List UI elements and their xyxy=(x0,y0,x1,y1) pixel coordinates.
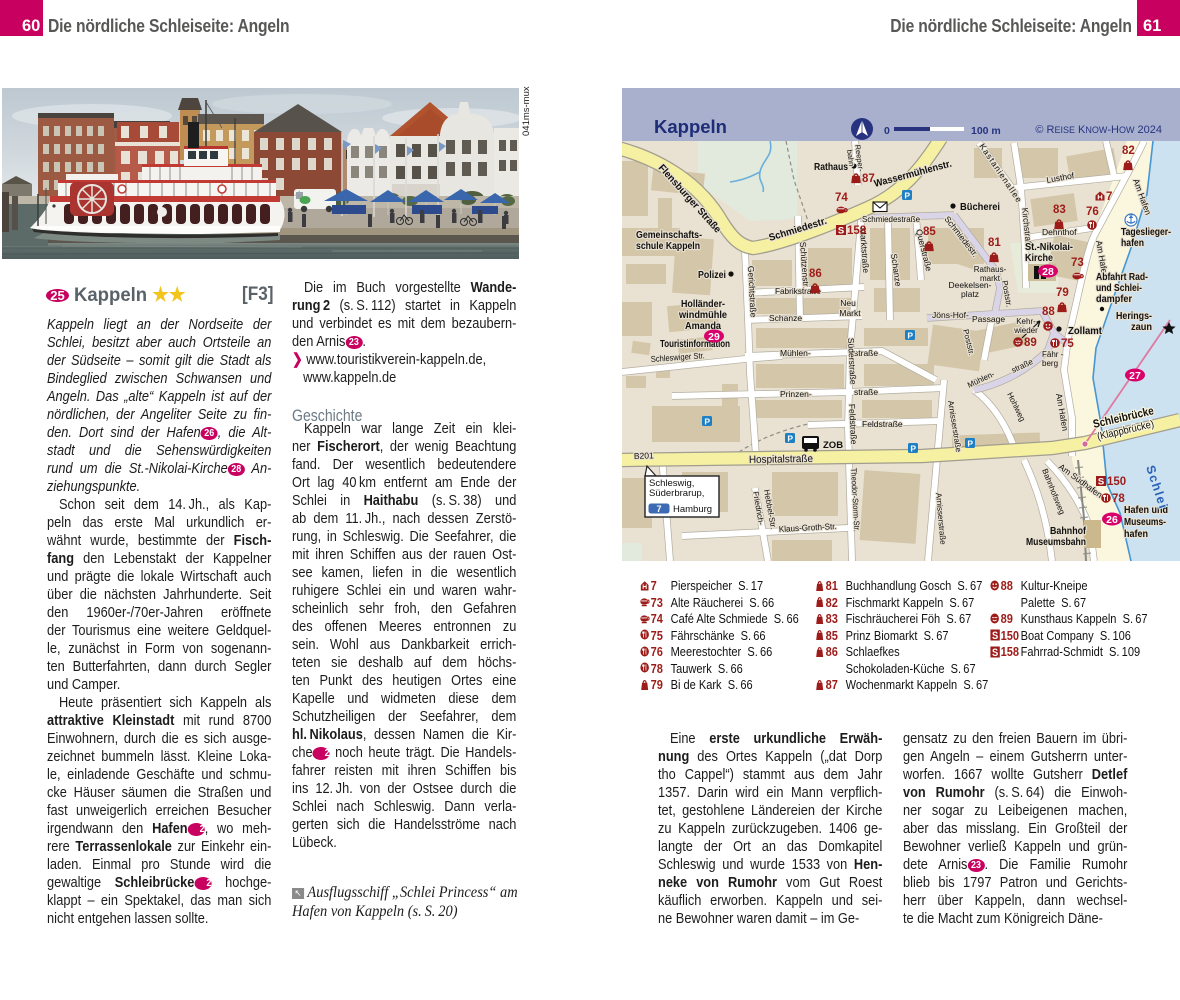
svg-text:Herings-: Herings- xyxy=(1116,311,1152,322)
svg-text:28: 28 xyxy=(1042,266,1054,278)
svg-text:150: 150 xyxy=(1107,476,1126,488)
svg-text:Hamburg: Hamburg xyxy=(673,504,712,515)
svg-text:85: 85 xyxy=(923,226,936,238)
svg-text:dampfer: dampfer xyxy=(1096,294,1132,305)
svg-text:Feldstraße: Feldstraße xyxy=(862,419,903,429)
svg-text:7: 7 xyxy=(656,504,661,514)
svg-text:Zollamt: Zollamt xyxy=(1068,326,1103,337)
svg-text:Fähr -: Fähr - xyxy=(1042,350,1064,359)
svg-text:Jöns-Hof-: Jöns-Hof- xyxy=(932,310,969,320)
svg-text:hafen: hafen xyxy=(1121,238,1144,249)
svg-text:Passage: Passage xyxy=(972,314,1005,324)
svg-text:27: 27 xyxy=(1129,370,1141,382)
svg-text:Kappeln: Kappeln xyxy=(654,116,727,137)
svg-text:0: 0 xyxy=(884,125,890,137)
svg-text:und Schlei-: und Schlei- xyxy=(1096,283,1142,294)
svg-text:Museumsbahn: Museumsbahn xyxy=(1026,537,1086,548)
svg-text:100 m: 100 m xyxy=(971,125,1001,137)
svg-text:hafen: hafen xyxy=(1124,529,1148,540)
svg-text:83: 83 xyxy=(1053,204,1066,216)
svg-text:Schmiedestraße: Schmiedestraße xyxy=(862,214,920,224)
svg-text:B201: B201 xyxy=(634,450,654,461)
svg-text:Süderbrarup,: Süderbrarup, xyxy=(649,488,704,499)
svg-text:81: 81 xyxy=(988,237,1001,249)
svg-text:Polizei: Polizei xyxy=(698,270,726,281)
svg-text:74: 74 xyxy=(835,192,848,204)
svg-text:© REISE KNOW-HOW 2024: © REISE KNOW-HOW 2024 xyxy=(1035,124,1162,136)
svg-text:Feldstraße: Feldstraße xyxy=(847,404,859,445)
svg-text:29: 29 xyxy=(708,331,720,343)
svg-text:Tageslieger-: Tageslieger- xyxy=(1121,227,1171,238)
svg-text:88: 88 xyxy=(1042,306,1055,318)
svg-text:Holländer-: Holländer- xyxy=(681,299,725,310)
svg-text:73: 73 xyxy=(1071,257,1084,269)
svg-text:Mühlen-: Mühlen- xyxy=(780,348,811,358)
svg-text:Kirche: Kirche xyxy=(1025,253,1053,264)
svg-text:Abfahrt Rad-: Abfahrt Rad- xyxy=(1096,272,1148,283)
svg-text:Gemeinschafts-: Gemeinschafts- xyxy=(636,230,702,241)
svg-text:Rathaus: Rathaus xyxy=(814,162,848,173)
svg-text:Schanze: Schanze xyxy=(769,313,802,323)
svg-text:7: 7 xyxy=(1106,191,1112,203)
svg-text:Hospitalstraße: Hospitalstraße xyxy=(749,453,813,466)
svg-text:schule Kappeln: schule Kappeln xyxy=(636,241,700,252)
svg-text:St.-Nikolai-: St.-Nikolai- xyxy=(1025,242,1073,253)
svg-text:158: 158 xyxy=(847,225,867,237)
svg-text:Bahnhof: Bahnhof xyxy=(1050,526,1087,537)
svg-text:26: 26 xyxy=(1106,514,1118,526)
svg-text:wieder: wieder xyxy=(1013,326,1038,335)
svg-text:82: 82 xyxy=(1122,145,1135,157)
svg-text:Museums-: Museums- xyxy=(1124,517,1166,528)
svg-text:Markt: Markt xyxy=(839,308,861,318)
svg-text:zaun: zaun xyxy=(1131,322,1152,333)
svg-text:Rathaus-: Rathaus- xyxy=(974,265,1007,274)
svg-text:berg: berg xyxy=(1042,359,1058,368)
svg-text:straße: straße xyxy=(854,387,878,397)
svg-text:79: 79 xyxy=(1056,287,1069,299)
svg-text:76: 76 xyxy=(1086,206,1099,218)
svg-text:Neu: Neu xyxy=(840,298,856,308)
svg-text:89: 89 xyxy=(1024,337,1037,349)
svg-text:Kehr-: Kehr- xyxy=(1016,317,1036,326)
svg-text:78: 78 xyxy=(1112,493,1125,505)
svg-text:87: 87 xyxy=(862,173,875,185)
svg-text:75: 75 xyxy=(1061,338,1074,350)
svg-text:windmühle: windmühle xyxy=(678,310,727,321)
svg-text:Prinzen-: Prinzen- xyxy=(780,389,812,399)
svg-text:86: 86 xyxy=(809,268,822,280)
svg-text:ZOB: ZOB xyxy=(823,440,843,451)
svg-text:platz: platz xyxy=(961,289,979,299)
svg-text:Bücherei: Bücherei xyxy=(960,202,1000,213)
